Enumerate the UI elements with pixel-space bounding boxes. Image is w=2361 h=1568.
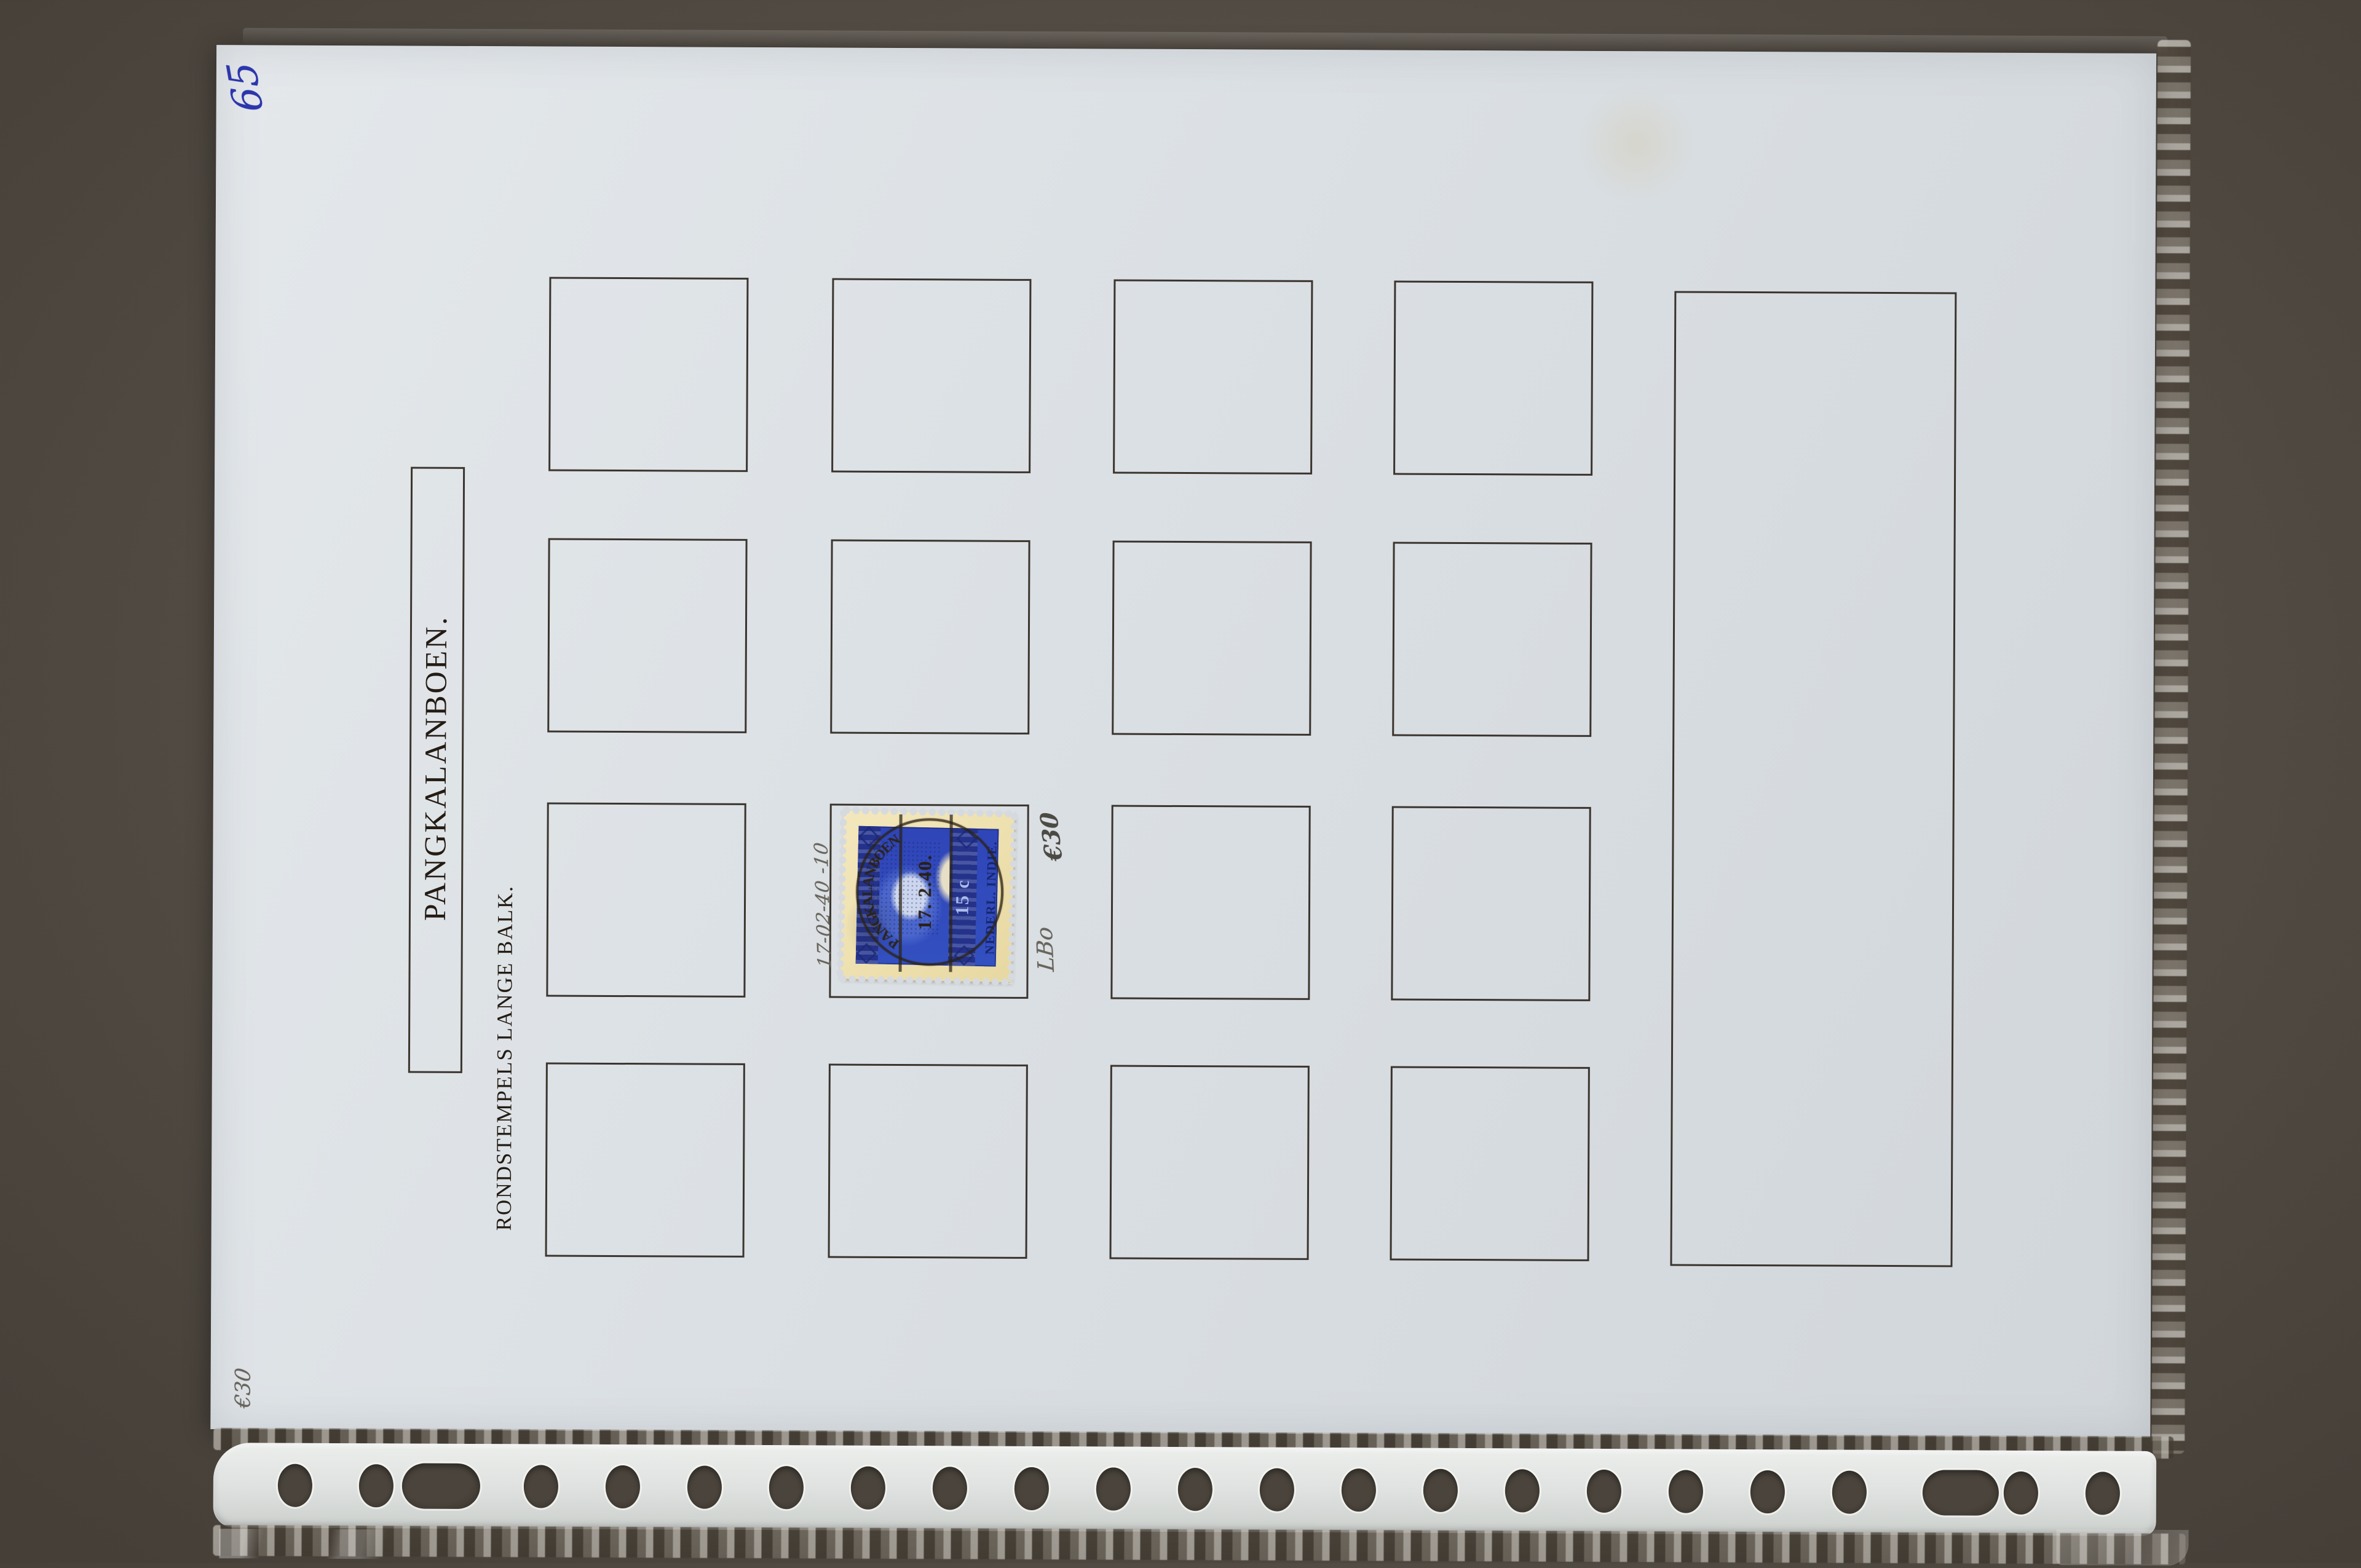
punch-hole [524, 1465, 558, 1508]
punch-hole [687, 1466, 722, 1509]
punch-hole [1178, 1468, 1212, 1511]
punch-hole [2086, 1471, 2120, 1515]
stamp-box [1390, 1066, 1590, 1261]
punch-hole [1505, 1469, 1540, 1512]
album-page: PANGKALANBOEN. RONDSTEMPELS LANGE BALK. [210, 45, 2156, 1438]
plastic-sleeve: PANGKALANBOEN. RONDSTEMPELS LANGE BALK. [0, 0, 2361, 1568]
punch-hole [2004, 1471, 2038, 1515]
large-stamp-box [1670, 291, 1956, 1267]
sleeve-right-seam [2151, 40, 2191, 1454]
stamp-box [1112, 541, 1311, 736]
stamp-box [831, 278, 1031, 473]
stamp-box [547, 538, 747, 733]
punch-hole [1750, 1470, 1785, 1513]
stamp-box [1393, 281, 1593, 476]
punch-hole [359, 1464, 393, 1507]
postmark-smudge [845, 892, 900, 959]
punch-hole [851, 1467, 885, 1510]
stamp-box [1391, 806, 1591, 1001]
punch-hole [1423, 1469, 1458, 1512]
punch-hole [933, 1467, 967, 1510]
sleeve-wrinkle [219, 1529, 588, 1560]
punch-slot [1923, 1470, 1999, 1516]
punch-hole [769, 1466, 804, 1509]
punch-hole [1014, 1467, 1049, 1510]
punch-slot [401, 1463, 480, 1509]
photo-background: { "page": { "title": "PANGKALANBOEN.", "… [0, 0, 2361, 1563]
punch-hole [1260, 1468, 1294, 1511]
punch-hole [1096, 1467, 1131, 1510]
postmark: 17. 2.40. PANGKALANBOEN [856, 818, 1004, 966]
punch-hole [1587, 1470, 1621, 1513]
stamp-box [1113, 280, 1313, 475]
stamp-box [548, 277, 748, 472]
sleeve-corner-flap [2056, 1529, 2188, 1566]
stamp-box [1392, 542, 1592, 737]
punch-hole [606, 1465, 640, 1508]
stamp-box [545, 1063, 745, 1258]
punch-hole [1669, 1470, 1703, 1513]
stamp-box [1110, 1065, 1310, 1260]
stamp-box [830, 540, 1030, 735]
punch-hole [278, 1464, 312, 1507]
stamp-box [1110, 805, 1310, 1000]
stamp-box [546, 803, 746, 998]
punch-holes [3, 0, 2361, 5]
punch-hole [1342, 1468, 1376, 1511]
stamp-box [828, 1064, 1028, 1259]
punch-hole [1832, 1471, 1867, 1514]
